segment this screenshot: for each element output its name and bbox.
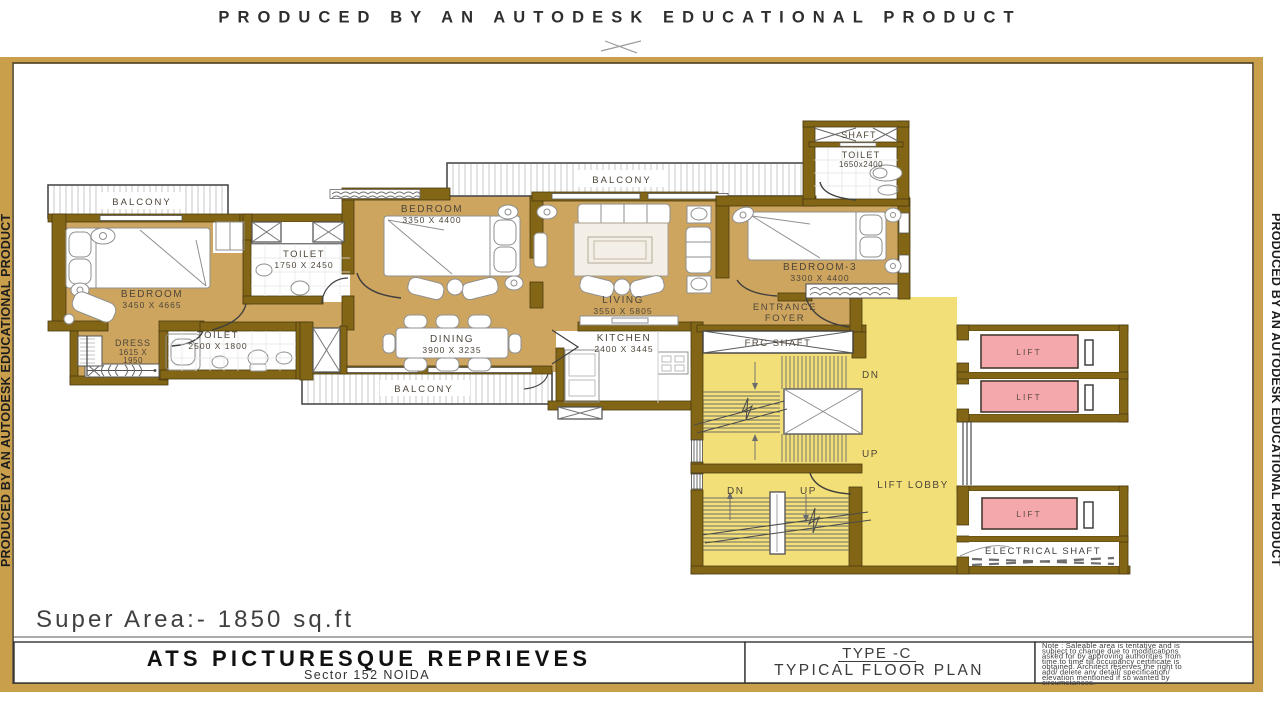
svg-text:TOILET: TOILET xyxy=(283,249,325,260)
svg-text:DN: DN xyxy=(727,486,744,497)
svg-text:PRODUCED BY AN AUTODESK EDUCAT: PRODUCED BY AN AUTODESK EDUCATIONAL PROD… xyxy=(1269,213,1280,566)
svg-text:DINING: DINING xyxy=(430,334,474,345)
svg-text:UP: UP xyxy=(862,449,879,460)
svg-text:BEDROOM-3: BEDROOM-3 xyxy=(783,262,857,273)
svg-text:3450 X 4665: 3450 X 4665 xyxy=(122,300,181,310)
svg-text:LIFT: LIFT xyxy=(1016,347,1041,357)
svg-text:LIFT: LIFT xyxy=(1016,392,1041,402)
svg-text:2400 X 3445: 2400 X 3445 xyxy=(594,344,653,354)
svg-text:UP: UP xyxy=(800,486,817,497)
svg-text:TOILET: TOILET xyxy=(842,150,881,160)
svg-text:3300 X 4400: 3300 X 4400 xyxy=(790,273,849,283)
svg-text:BALCONY: BALCONY xyxy=(394,384,453,395)
svg-text:Sector 152 NOIDA: Sector 152 NOIDA xyxy=(304,668,430,682)
svg-text:KITCHEN: KITCHEN xyxy=(597,333,651,344)
svg-text:ENTRANCE: ENTRANCE xyxy=(753,302,817,313)
svg-text:TYPICAL FLOOR PLAN: TYPICAL FLOOR PLAN xyxy=(774,662,984,679)
svg-text:1950: 1950 xyxy=(123,356,143,365)
svg-text:ELECTRICAL SHAFT: ELECTRICAL SHAFT xyxy=(985,546,1101,557)
svg-text:DRESS: DRESS xyxy=(115,338,151,348)
svg-text:PRODUCED BY AN AUTODESK EDUCAT: PRODUCED BY AN AUTODESK EDUCATIONAL PROD… xyxy=(0,214,13,567)
svg-text:Super Area:- 1850 sq.ft: Super Area:- 1850 sq.ft xyxy=(36,606,354,633)
svg-text:2500 X 1800: 2500 X 1800 xyxy=(188,341,247,351)
svg-text:DN: DN xyxy=(862,370,879,381)
svg-text:SHAFT: SHAFT xyxy=(841,130,877,140)
svg-text:LIVING: LIVING xyxy=(602,295,644,306)
svg-text:1750 X 2450: 1750 X 2450 xyxy=(274,260,333,270)
svg-text:3550 X 5805: 3550 X 5805 xyxy=(593,306,652,316)
svg-text:BEDROOM: BEDROOM xyxy=(121,289,183,300)
svg-text:FRC SHAFT: FRC SHAFT xyxy=(745,338,812,349)
svg-text:TYPE -C: TYPE -C xyxy=(842,645,912,662)
svg-text:BALCONY: BALCONY xyxy=(592,175,651,186)
svg-text:LIFT: LIFT xyxy=(1016,509,1041,519)
svg-text:3350 X 4400: 3350 X 4400 xyxy=(402,215,461,225)
svg-text:BEDROOM: BEDROOM xyxy=(401,204,463,215)
svg-text:PRODUCED BY AN AUTODESK EDUCAT: PRODUCED BY AN AUTODESK EDUCATIONAL PROD… xyxy=(218,9,1021,27)
svg-text:circumstances.: circumstances. xyxy=(1042,678,1095,687)
svg-text:LIFT LOBBY: LIFT LOBBY xyxy=(877,480,949,491)
svg-text:BALCONY: BALCONY xyxy=(112,197,171,208)
svg-text:3900 X 3235: 3900 X 3235 xyxy=(422,345,481,355)
svg-text:1650x2400: 1650x2400 xyxy=(839,160,883,169)
svg-text:FOYER: FOYER xyxy=(765,313,805,324)
svg-text:TOILET: TOILET xyxy=(197,330,239,341)
